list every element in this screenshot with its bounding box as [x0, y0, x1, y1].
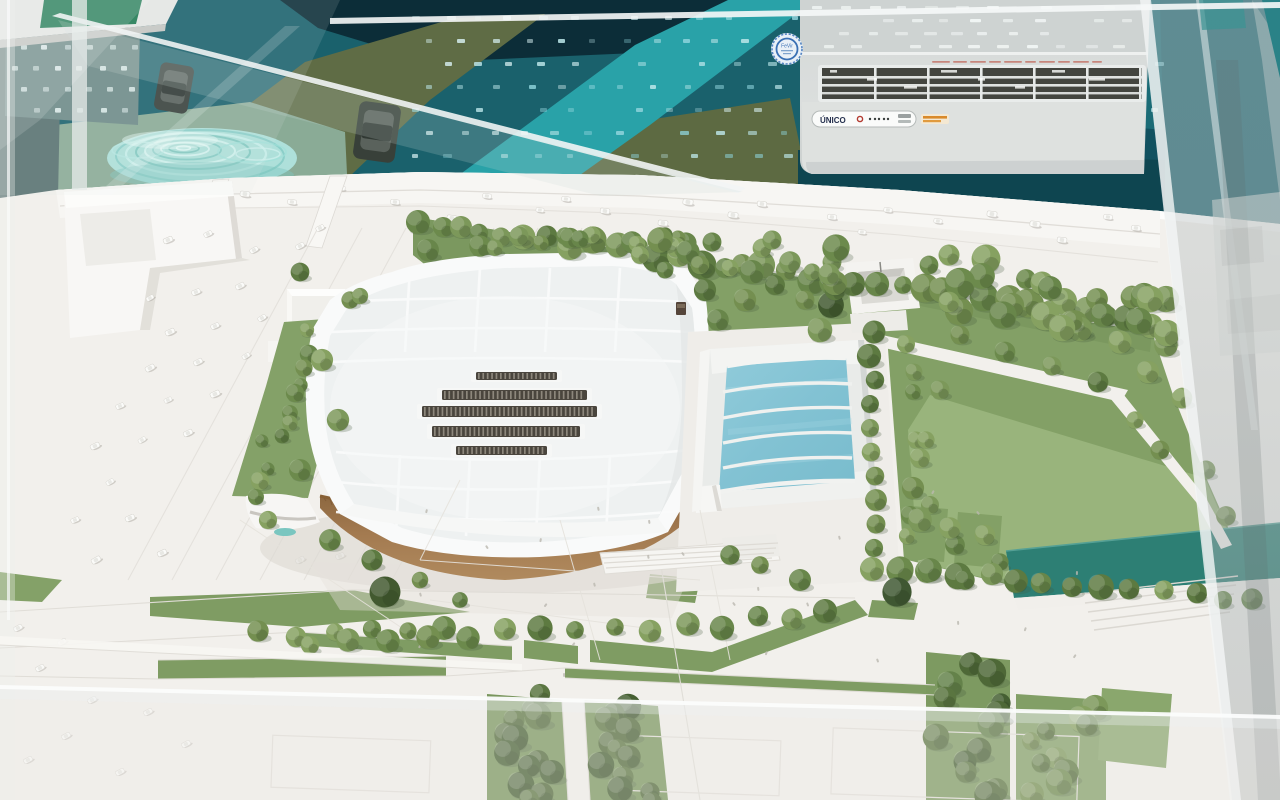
svg-text:ÚNICO: ÚNICO	[820, 116, 846, 125]
svg-text:FeVir: FeVir	[781, 44, 793, 50]
